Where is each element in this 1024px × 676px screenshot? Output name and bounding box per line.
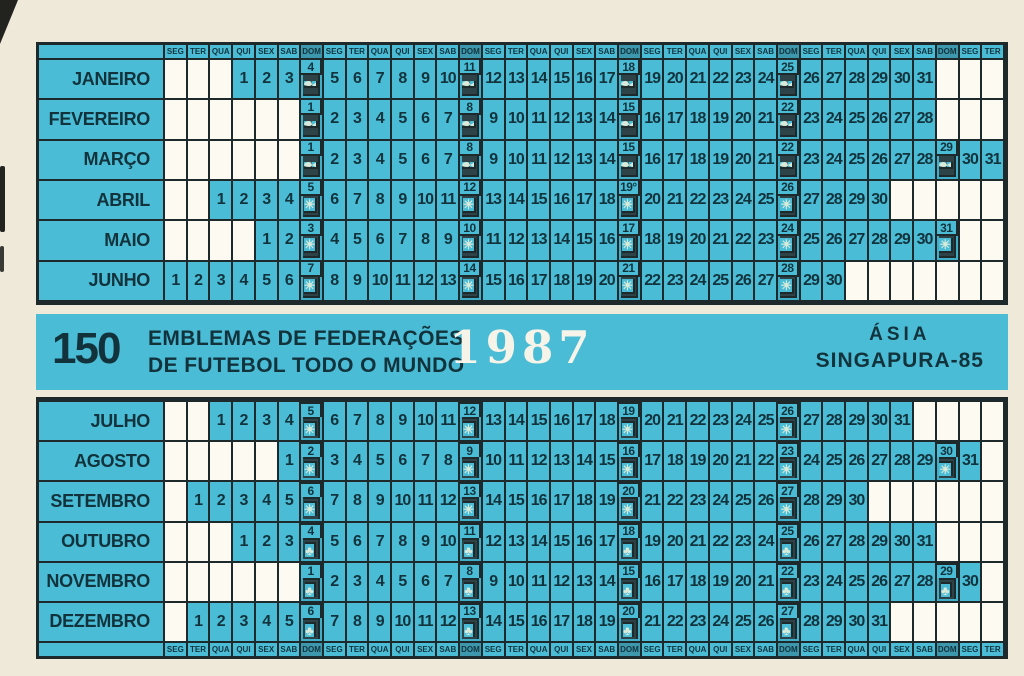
empty-cell [914, 181, 937, 221]
weekday-header-cell: QUA [846, 641, 869, 656]
day-cell: 12 [437, 601, 460, 641]
sunday-symbol-tile: ☀ [462, 277, 479, 298]
day-cell: 31 [914, 60, 937, 100]
day-cell: 30 [869, 181, 892, 221]
sunday-symbol-tile: ☀ [780, 196, 797, 217]
day-cell: 12 [551, 561, 574, 601]
sunday-symbol-tile: ☀ [621, 236, 638, 257]
weekday-header-cell: SEX [733, 45, 756, 60]
day-cell: 11 [506, 440, 529, 480]
weekday-header-cell: QUA [528, 641, 551, 656]
day-cell: 7 [324, 601, 347, 641]
sunday-number: 20 [619, 482, 640, 497]
sunday-symbol-tile: ♣ [462, 578, 479, 599]
sunday-number: 28 [778, 262, 799, 277]
day-cell: 11 [528, 100, 551, 140]
day-cell: 28 [914, 100, 937, 140]
day-cell: 27 [823, 521, 846, 561]
day-cell: 26 [869, 561, 892, 601]
empty-cell [188, 100, 211, 140]
sunday-cell: 4 [301, 60, 324, 100]
day-cell: 10 [506, 561, 529, 601]
weekday-header-cell: SEG [642, 45, 665, 60]
day-cell: 6 [347, 60, 370, 100]
month-label: FEVEREIRO [39, 100, 165, 140]
day-cell: 25 [710, 262, 733, 302]
day-cell: 24 [733, 400, 756, 440]
day-cell: 9 [483, 141, 506, 181]
clover-icon: ♣ [941, 582, 952, 597]
sunday-cell: 28☀ [778, 262, 801, 302]
clover-icon: ♣ [464, 542, 475, 557]
sunday-cell: 1♣ [301, 561, 324, 601]
day-cell: 17 [596, 60, 619, 100]
sunday-number: 7 [301, 262, 322, 277]
weekday-header-cell: TER [823, 641, 846, 656]
sunday-number: 14 [460, 262, 481, 277]
day-cell: 13 [437, 262, 460, 302]
weekday-header-cell: QUA [687, 641, 710, 656]
weekday-header-cell: DOM [619, 45, 642, 60]
weekday-header-spacer [39, 641, 165, 656]
day-cell: 25 [755, 400, 778, 440]
day-cell: 11 [437, 400, 460, 440]
day-cell: 19 [642, 60, 665, 100]
day-cell: 19 [642, 521, 665, 561]
empty-cell [210, 60, 233, 100]
day-cell: 4 [233, 262, 256, 302]
sun-icon: ☀ [463, 421, 477, 436]
sunday-cell: 9☀ [460, 440, 483, 480]
day-cell: 13 [528, 221, 551, 261]
info-band: 150 EMBLEMAS DE FEDERAÇÕES DE FUTEBOL TO… [36, 314, 1008, 390]
day-cell: 23 [687, 480, 710, 520]
day-cell: 27 [801, 181, 824, 221]
month-label: SETEMBRO [39, 480, 165, 520]
empty-cell [165, 100, 188, 140]
sun-icon: ☀ [780, 279, 794, 294]
day-cell: 13 [483, 400, 506, 440]
sunday-number: 8 [460, 141, 481, 156]
day-cell: 20 [664, 521, 687, 561]
sunday-symbol-tile [462, 115, 479, 136]
fish-icon [304, 121, 318, 128]
sunday-number: 3 [301, 221, 322, 236]
day-cell: 29 [914, 440, 937, 480]
empty-cell [982, 440, 1005, 480]
empty-cell [891, 181, 914, 221]
fish-icon [780, 81, 794, 88]
day-cell: 26 [755, 480, 778, 520]
day-cell: 22 [687, 181, 710, 221]
day-cell: 17 [642, 440, 665, 480]
sunday-symbol-tile [462, 75, 479, 96]
empty-cell [914, 601, 937, 641]
sunday-symbol-tile: ♣ [780, 618, 797, 639]
weekday-header-cell: QUA [528, 45, 551, 60]
day-cell: 21 [642, 601, 665, 641]
day-cell: 8 [369, 181, 392, 221]
fish-icon [621, 121, 635, 128]
day-cell: 10 [392, 601, 415, 641]
day-cell: 18 [596, 181, 619, 221]
day-cell: 10 [437, 60, 460, 100]
sunday-number: 11 [460, 60, 481, 75]
day-cell: 2 [324, 100, 347, 140]
sunday-cell: 22 [778, 141, 801, 181]
day-cell: 6 [415, 100, 438, 140]
weekday-header-cell: DOM [778, 45, 801, 60]
weekday-header-cell: SEG [801, 45, 824, 60]
day-cell: 14 [506, 400, 529, 440]
day-cell: 23 [687, 601, 710, 641]
day-cell: 12 [506, 221, 529, 261]
day-cell: 3 [279, 521, 302, 561]
weekday-header-cell: SAB [437, 45, 460, 60]
day-cell: 9 [347, 262, 370, 302]
day-cell: 22 [687, 400, 710, 440]
day-cell: 2 [324, 561, 347, 601]
day-cell: 27 [801, 400, 824, 440]
day-cell: 3 [210, 262, 233, 302]
day-cell: 22 [664, 480, 687, 520]
fish-icon-tail [470, 122, 475, 128]
sunday-cell: 3☀ [301, 221, 324, 261]
day-cell: 15 [528, 400, 551, 440]
sunday-number: 6 [301, 603, 322, 618]
day-cell: 27 [846, 221, 869, 261]
month-label: JULHO [39, 400, 165, 440]
sunday-cell: 30☀ [937, 440, 960, 480]
sunday-cell: 8 [460, 100, 483, 140]
day-cell: 8 [415, 221, 438, 261]
sunday-cell: 5☀ [301, 400, 324, 440]
empty-cell [891, 480, 914, 520]
day-cell: 5 [324, 521, 347, 561]
sun-icon: ☀ [622, 198, 636, 213]
empty-cell [914, 262, 937, 302]
day-cell: 23 [710, 400, 733, 440]
sun-icon: ☀ [939, 461, 953, 476]
sun-icon: ☀ [780, 461, 794, 476]
day-cell: 7 [437, 561, 460, 601]
sun-icon: ☀ [463, 501, 477, 516]
day-cell: 7 [324, 480, 347, 520]
day-cell: 29 [869, 521, 892, 561]
day-cell: 21 [687, 60, 710, 100]
sunday-cell: 27♣ [778, 601, 801, 641]
day-cell: 22 [642, 262, 665, 302]
sunday-cell: 13☀ [460, 480, 483, 520]
day-cell: 5 [324, 60, 347, 100]
weekday-header-cell: SEX [574, 45, 597, 60]
day-cell: 27 [891, 561, 914, 601]
day-cell: 11 [528, 561, 551, 601]
sunday-number: 24 [778, 221, 799, 236]
day-cell: 27 [891, 100, 914, 140]
day-cell: 30 [846, 601, 869, 641]
empty-cell [982, 400, 1005, 440]
day-cell: 8 [369, 400, 392, 440]
sunday-cell: 7☀ [301, 262, 324, 302]
day-cell: 4 [279, 181, 302, 221]
sunday-cell: 29♣ [937, 561, 960, 601]
sunday-symbol-tile [462, 156, 479, 177]
day-cell: 29 [846, 181, 869, 221]
weekday-header-cell: DOM [301, 641, 324, 656]
empty-cell [233, 561, 256, 601]
day-cell: 14 [483, 480, 506, 520]
sunday-cell: 22 [778, 100, 801, 140]
day-cell: 18 [596, 400, 619, 440]
empty-cell [891, 601, 914, 641]
clover-icon: ♣ [782, 622, 793, 637]
day-cell: 6 [415, 561, 438, 601]
day-cell: 7 [415, 440, 438, 480]
sunday-number: 15 [619, 563, 640, 578]
empty-cell [210, 561, 233, 601]
weekday-header-cell: SEX [415, 45, 438, 60]
day-cell: 26 [801, 521, 824, 561]
day-cell: 23 [733, 521, 756, 561]
day-cell: 29 [869, 60, 892, 100]
sunday-symbol-tile: ♣ [462, 538, 479, 559]
empty-cell [914, 400, 937, 440]
clover-icon: ♣ [464, 622, 475, 637]
empty-cell [869, 262, 892, 302]
day-cell: 21 [755, 100, 778, 140]
sun-icon: ☀ [780, 501, 794, 516]
day-cell: 13 [483, 181, 506, 221]
weekday-header-cell: QUI [551, 641, 574, 656]
sunday-cell: 17☀ [619, 221, 642, 261]
day-cell: 21 [755, 561, 778, 601]
sunday-cell: 18♣ [619, 521, 642, 561]
sunday-number: 6 [301, 482, 322, 497]
day-cell: 9 [369, 480, 392, 520]
day-cell: 19 [596, 480, 619, 520]
sunday-number: 11 [460, 523, 481, 538]
day-cell: 19 [710, 561, 733, 601]
day-cell: 1 [233, 60, 256, 100]
fish-icon-tail [470, 82, 475, 88]
day-cell: 19 [710, 141, 733, 181]
sun-icon: ☀ [780, 421, 794, 436]
weekday-header-cell: TER [188, 641, 211, 656]
sunday-symbol-tile [780, 156, 797, 177]
day-cell: 28 [914, 141, 937, 181]
sunday-cell: 29 [937, 141, 960, 181]
day-cell: 27 [755, 262, 778, 302]
day-cell: 12 [551, 100, 574, 140]
region-name: ÁSIA [869, 324, 930, 346]
weekday-header-cell: SEG [483, 641, 506, 656]
day-cell: 1 [256, 221, 279, 261]
day-cell: 20 [664, 60, 687, 100]
sunday-number: 22 [778, 563, 799, 578]
day-cell: 30 [960, 561, 983, 601]
day-cell: 29 [823, 601, 846, 641]
fish-icon-tail [947, 162, 952, 168]
day-cell: 6 [347, 521, 370, 561]
day-cell: 25 [846, 141, 869, 181]
weekday-header-cell: SEG [165, 45, 188, 60]
empty-cell [233, 221, 256, 261]
sunday-cell: 19°☀ [619, 181, 642, 221]
sunday-symbol-tile: ♣ [462, 618, 479, 639]
day-cell: 10 [437, 521, 460, 561]
weekday-header-cell: QUA [210, 641, 233, 656]
day-cell: 11 [528, 141, 551, 181]
day-cell: 9 [369, 601, 392, 641]
fish-icon [462, 121, 476, 128]
sunday-cell: 23☀ [778, 440, 801, 480]
empty-cell [960, 181, 983, 221]
weekday-header-cell: QUI [710, 641, 733, 656]
month-label: MARÇO [39, 141, 165, 181]
weekday-header-cell: SEX [733, 641, 756, 656]
day-cell: 11 [392, 262, 415, 302]
empty-cell [937, 181, 960, 221]
day-cell: 31 [982, 141, 1005, 181]
empty-cell [165, 60, 188, 100]
day-cell: 17 [574, 181, 597, 221]
weekday-header-cell: QUA [369, 641, 392, 656]
day-cell: 18 [687, 100, 710, 140]
day-cell: 9 [415, 521, 438, 561]
day-cell: 17 [664, 561, 687, 601]
day-cell: 25 [846, 100, 869, 140]
day-cell: 16 [551, 400, 574, 440]
sunday-symbol-tile [621, 156, 638, 177]
day-cell: 26 [846, 440, 869, 480]
empty-cell [982, 601, 1005, 641]
sunday-symbol-tile: ☀ [303, 497, 320, 518]
empty-cell [165, 141, 188, 181]
empty-cell [937, 601, 960, 641]
sunday-cell: 20☀ [619, 480, 642, 520]
day-cell: 9 [392, 181, 415, 221]
weekday-header-cell: QUI [392, 641, 415, 656]
day-cell: 26 [755, 601, 778, 641]
day-cell: 6 [324, 400, 347, 440]
day-cell: 28 [823, 400, 846, 440]
sunday-cell: 6♣ [301, 601, 324, 641]
empty-cell [256, 440, 279, 480]
sunday-number: 19 [619, 402, 640, 417]
weekday-header-cell: SEG [483, 45, 506, 60]
weekday-header-cell: SEX [415, 641, 438, 656]
day-cell: 11 [483, 221, 506, 261]
weekday-header-cell: SAB [755, 45, 778, 60]
day-cell: 17 [596, 521, 619, 561]
clover-icon: ♣ [782, 582, 793, 597]
day-cell: 1 [233, 521, 256, 561]
sunday-number: 8 [460, 100, 481, 115]
empty-cell [165, 480, 188, 520]
day-cell: 22 [710, 521, 733, 561]
sunday-cell: 15♣ [619, 561, 642, 601]
sunday-symbol-tile [939, 156, 956, 177]
day-cell: 13 [574, 141, 597, 181]
day-cell: 21 [687, 521, 710, 561]
fish-icon-tail [312, 82, 317, 88]
day-cell: 17 [664, 141, 687, 181]
empty-cell [982, 561, 1005, 601]
sunday-symbol-tile [621, 115, 638, 136]
empty-cell [279, 561, 302, 601]
day-cell: 31 [914, 521, 937, 561]
empty-cell [982, 521, 1005, 561]
sun-icon: ☀ [780, 238, 794, 253]
day-cell: 4 [369, 100, 392, 140]
clover-icon: ♣ [623, 542, 634, 557]
fish-icon [621, 162, 635, 169]
fish-icon-tail [629, 122, 634, 128]
sunday-number: 10 [460, 221, 481, 236]
day-cell: 14 [596, 561, 619, 601]
empty-cell [891, 262, 914, 302]
day-cell: 16 [642, 100, 665, 140]
day-cell: 3 [347, 561, 370, 601]
day-cell: 28 [801, 480, 824, 520]
sunday-symbol-tile [780, 115, 797, 136]
weekday-header-cell: TER [823, 45, 846, 60]
sunday-symbol-tile: ☀ [462, 457, 479, 478]
empty-cell [960, 221, 983, 261]
day-cell: 2 [210, 601, 233, 641]
day-cell: 23 [801, 561, 824, 601]
fish-icon-tail [788, 162, 793, 168]
sunday-symbol-tile: ♣ [621, 618, 638, 639]
day-cell: 18 [574, 601, 597, 641]
day-cell: 25 [755, 181, 778, 221]
weekday-header-cell: SEG [960, 45, 983, 60]
day-cell: 2 [324, 141, 347, 181]
weekday-header-cell: QUI [392, 45, 415, 60]
sunday-symbol-tile: ☀ [462, 497, 479, 518]
day-cell: 31 [869, 601, 892, 641]
day-cell: 3 [256, 400, 279, 440]
day-cell: 7 [437, 100, 460, 140]
weekday-header-cell: SAB [279, 45, 302, 60]
day-cell: 7 [369, 60, 392, 100]
sunday-symbol-tile [303, 115, 320, 136]
day-cell: 17 [528, 262, 551, 302]
calendar-top-grid: SEGTERQUAQUISEXSABDOMSEGTERQUAQUISEXSABD… [36, 42, 1008, 305]
sun-icon: ☀ [304, 238, 318, 253]
sunday-number: 22 [778, 100, 799, 115]
empty-cell [937, 60, 960, 100]
sunday-symbol-tile: ☀ [939, 457, 956, 478]
sunday-number: 21 [619, 262, 640, 277]
day-cell: 30 [891, 521, 914, 561]
sunday-number: 29 [937, 563, 958, 578]
day-cell: 27 [823, 60, 846, 100]
day-cell: 25 [733, 601, 756, 641]
sunday-symbol-tile: ☀ [621, 277, 638, 298]
day-cell: 1 [188, 601, 211, 641]
weekday-header-cell: DOM [937, 641, 960, 656]
day-cell: 18 [687, 141, 710, 181]
sunday-symbol-tile [303, 156, 320, 177]
day-cell: 21 [710, 221, 733, 261]
weekday-header-cell: QUI [869, 45, 892, 60]
scan-edge-artifact [0, 246, 4, 272]
day-cell: 10 [369, 262, 392, 302]
day-cell: 28 [914, 561, 937, 601]
day-cell: 14 [483, 601, 506, 641]
